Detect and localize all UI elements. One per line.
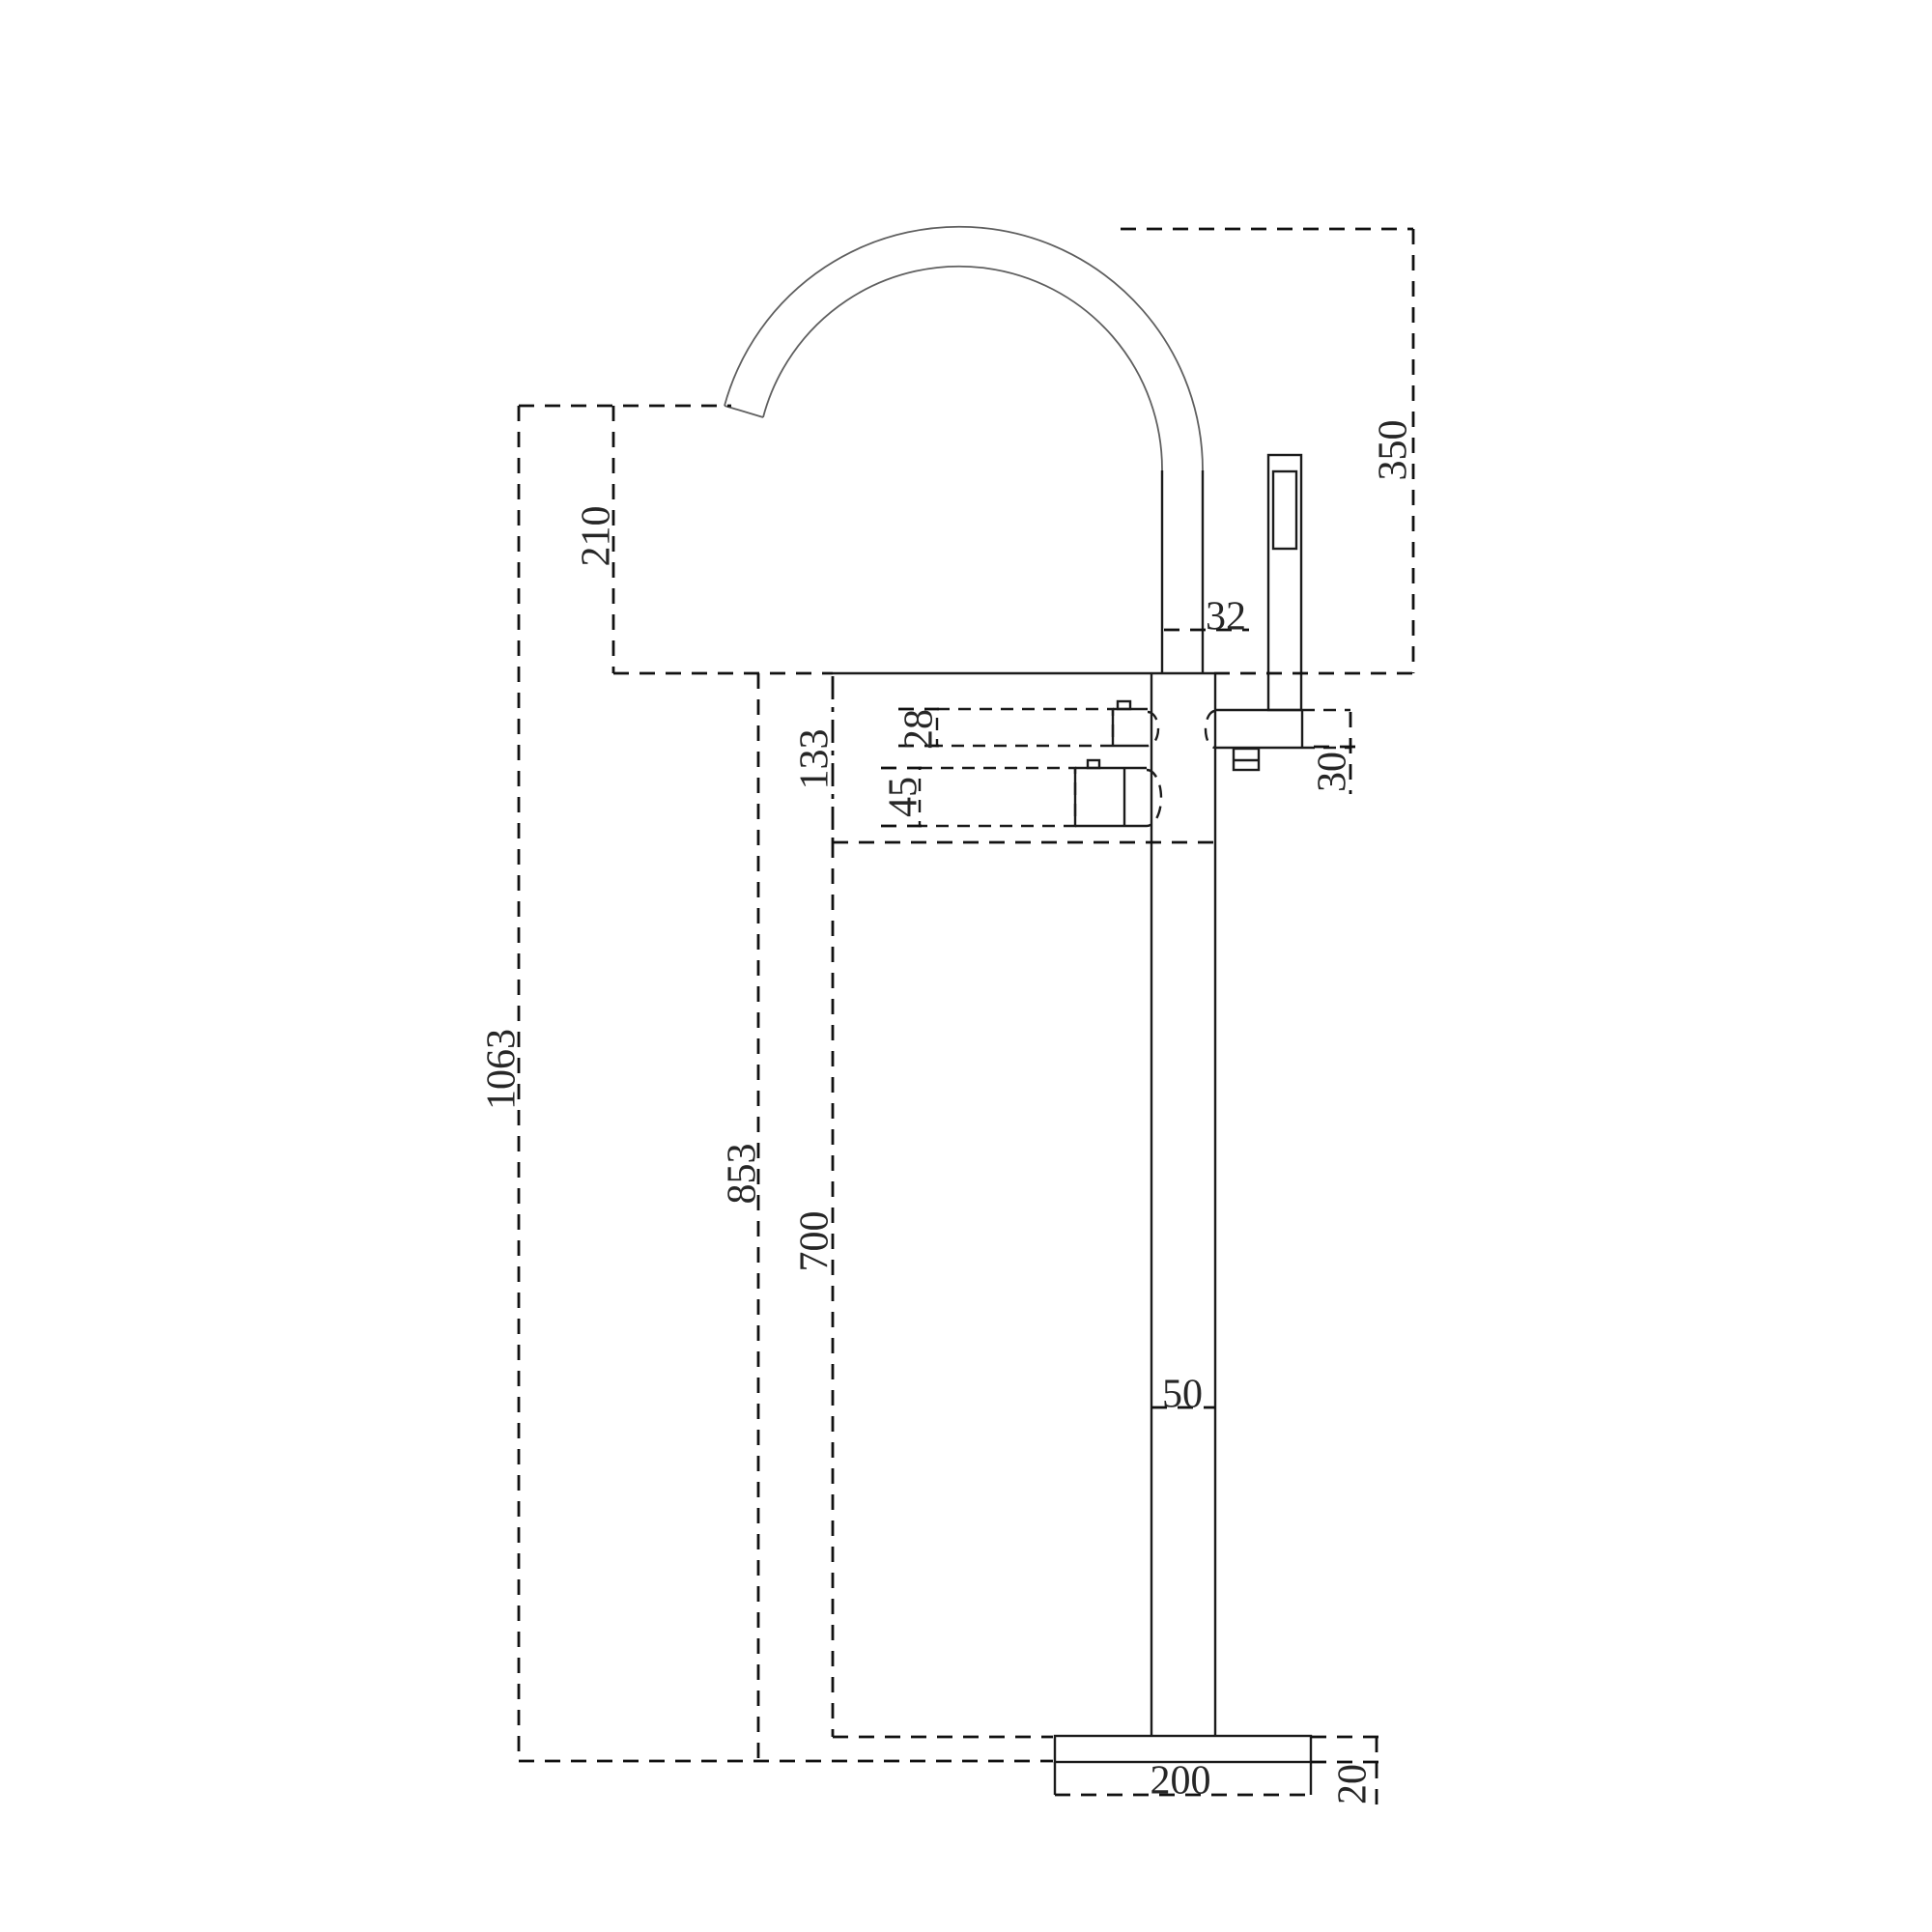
label-700: 700 bbox=[793, 1211, 838, 1272]
holder-left-cap-arc bbox=[1206, 711, 1215, 748]
dimension-lines bbox=[519, 229, 1413, 1808]
label-45: 45 bbox=[882, 777, 926, 817]
bottom-lever-handle bbox=[920, 760, 1161, 826]
label-20: 20 bbox=[1331, 1764, 1376, 1804]
spout-curve bbox=[724, 227, 1203, 470]
label-32: 32 bbox=[1206, 595, 1246, 639]
faucet-body bbox=[833, 470, 1311, 1795]
spout-outlet-end-face bbox=[724, 406, 763, 417]
label-133: 133 bbox=[793, 729, 838, 790]
label-853: 853 bbox=[721, 1144, 765, 1205]
label-28: 28 bbox=[897, 709, 942, 750]
label-200: 200 bbox=[1151, 1759, 1211, 1804]
label-350: 350 bbox=[1372, 420, 1416, 481]
top-handle-lever-hidden bbox=[937, 709, 1113, 746]
top-handle-boss-arc bbox=[1148, 712, 1158, 746]
label-30: 30 bbox=[1311, 752, 1355, 792]
bottom-handle-boss-arc bbox=[1147, 770, 1161, 826]
label-50: 50 bbox=[1162, 1373, 1203, 1417]
handshower-spray-face bbox=[1273, 471, 1296, 549]
spout-inner-arc bbox=[763, 267, 1162, 470]
label-210: 210 bbox=[575, 506, 619, 567]
bottom-handle-lever-hidden bbox=[920, 768, 1075, 826]
bath-filler-dimension-drawing: 210 350 32 133 28 45 30 1063 853 700 50 … bbox=[0, 0, 1932, 1932]
top-lever-handle bbox=[937, 701, 1158, 746]
dimension-labels: 210 350 32 133 28 45 30 1063 853 700 50 … bbox=[480, 420, 1416, 1805]
label-1063: 1063 bbox=[480, 1029, 525, 1110]
technical-drawing-canvas: 210 350 32 133 28 45 30 1063 853 700 50 … bbox=[0, 0, 1932, 1932]
